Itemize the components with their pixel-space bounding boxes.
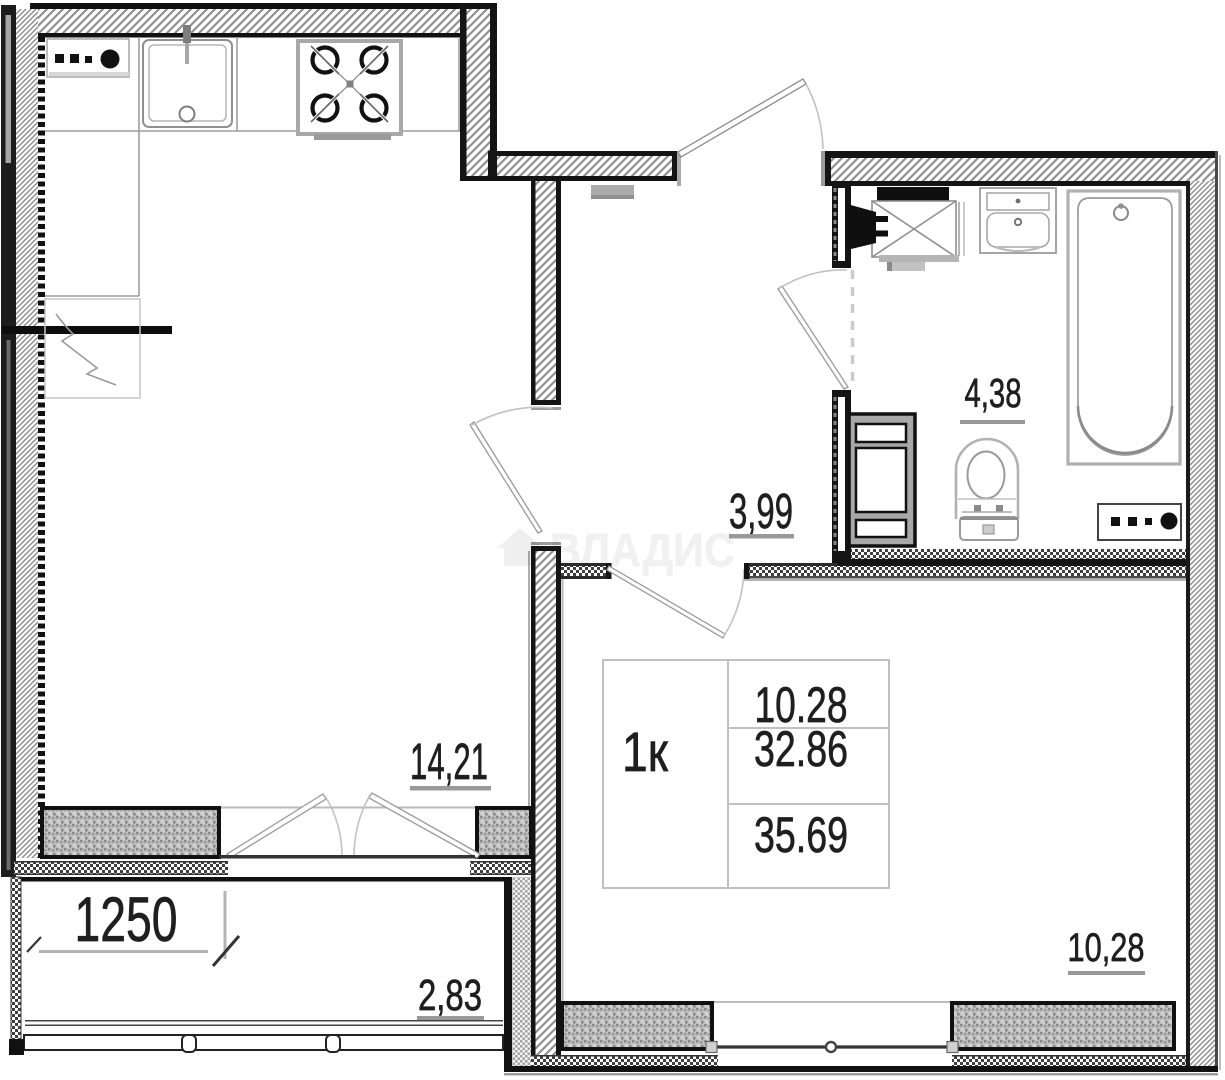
svg-text:10,28: 10,28 (1068, 926, 1145, 970)
svg-text:14,21: 14,21 (410, 733, 488, 790)
svg-text:4,38: 4,38 (965, 370, 1022, 416)
svg-text:35.69: 35.69 (754, 807, 848, 863)
svg-text:32.86: 32.86 (754, 721, 848, 777)
svg-text:3,99: 3,99 (729, 485, 793, 539)
svg-text:1к: 1к (622, 720, 668, 783)
svg-text:1250: 1250 (75, 885, 178, 955)
svg-text:2,83: 2,83 (418, 971, 482, 1020)
svg-text:ВЛАДИС: ВЛАДИС (550, 524, 735, 576)
